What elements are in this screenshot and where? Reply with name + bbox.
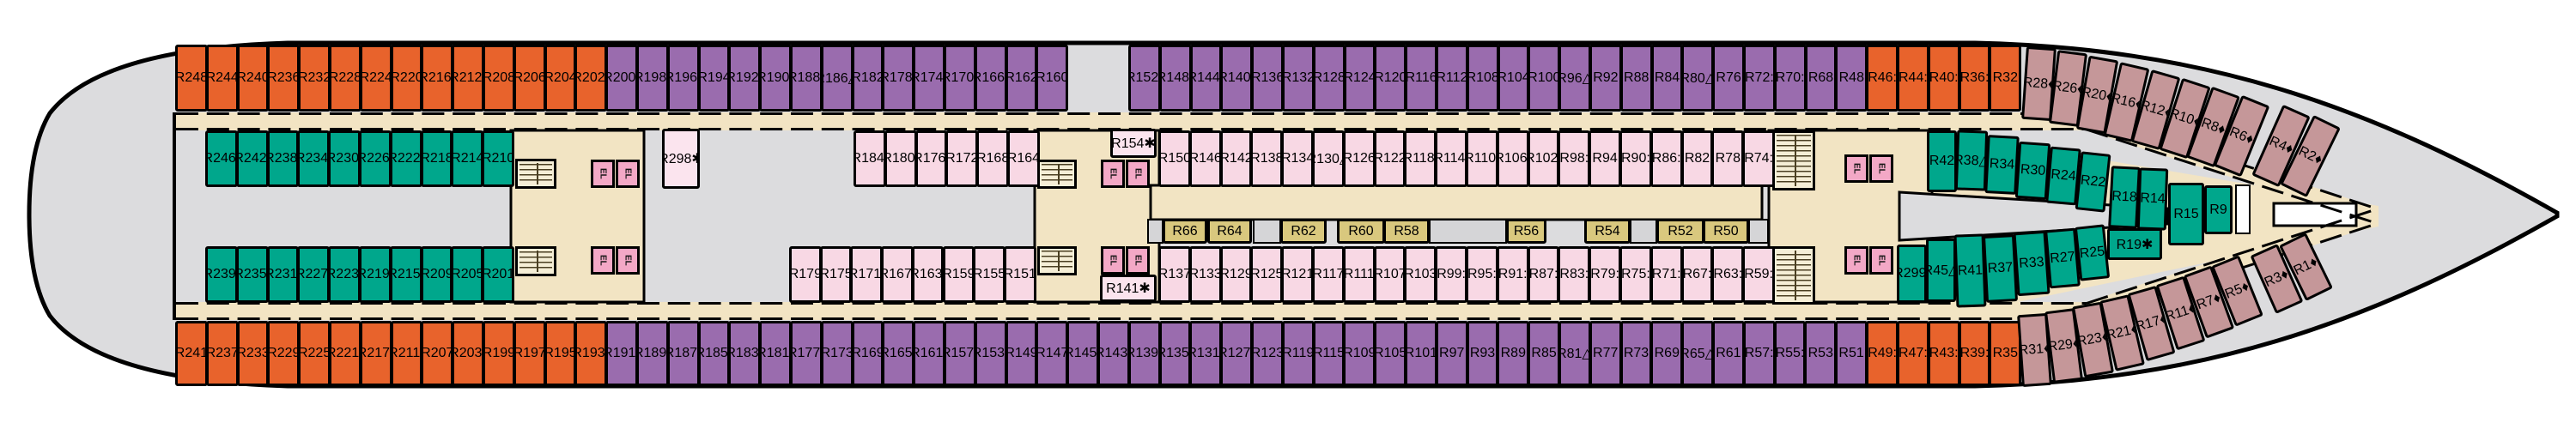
cabin-R90[interactable]: R90: [1619, 130, 1652, 187]
cabin-R181[interactable]: R181• [759, 321, 792, 386]
elevator-cell: EL [1126, 160, 1150, 188]
cabin-R219[interactable]: R219: [359, 246, 392, 303]
cabin-R153[interactable]: R153• [975, 321, 1007, 386]
cabin-R18[interactable]: R18 [2108, 166, 2141, 229]
cabin-R115[interactable]: R115 [1313, 321, 1346, 386]
cabin-R238[interactable]: R238: [267, 130, 300, 187]
cabin-R171[interactable]: R171: [850, 246, 883, 303]
cabin-R22[interactable]: R22 [2075, 151, 2111, 212]
cabin-R63[interactable]: R63: [1711, 246, 1744, 303]
cabin-R56[interactable]: R56 [1506, 219, 1546, 244]
cabin-R196[interactable]: R196• [667, 45, 700, 112]
cabin-R110[interactable]: R110: [1466, 130, 1498, 187]
stairs-icon [515, 159, 556, 189]
cabin-R83[interactable]: R83: [1558, 246, 1590, 303]
interior-gap [1429, 219, 1507, 244]
cabin-R125[interactable]: R125 [1250, 246, 1283, 303]
cabin-R95[interactable]: R95: [1466, 246, 1498, 303]
elevator-cell: EL [591, 246, 615, 275]
elevator-cell: EL [1126, 246, 1150, 275]
stairs-icon [1772, 246, 1815, 305]
cabin-R222[interactable]: R222: [390, 130, 422, 187]
elevator-cell: EL [1844, 154, 1868, 183]
elevator-cell: EL [1101, 246, 1125, 275]
cabin-R159[interactable]: R159 [943, 246, 975, 303]
cabin-R155[interactable]: R155 [973, 246, 1005, 303]
cabin-R33[interactable]: R33 [2013, 231, 2050, 296]
cabin-R201[interactable]: R201 [482, 246, 514, 303]
cabin-R137[interactable]: R137 [1158, 246, 1191, 303]
cabin-R182[interactable]: R182 [852, 45, 884, 112]
cabin-R218[interactable]: R218 [421, 130, 453, 187]
cabin-R244[interactable]: R244 [206, 45, 239, 112]
cabin-R98[interactable]: R98: [1558, 130, 1590, 187]
cabin-R211[interactable]: R211• [391, 321, 423, 386]
cabin-R198[interactable]: R198• [636, 45, 669, 112]
cabin-R99[interactable]: R99: [1435, 246, 1467, 303]
cabin-R41[interactable]: R41 [1954, 233, 1987, 307]
cabin-R203[interactable]: R203• [452, 321, 484, 386]
cabin-R177[interactable]: R177• [790, 321, 823, 386]
cabin-R19[interactable]: R19✱ [2107, 228, 2162, 260]
cabin-R235[interactable]: R235: [236, 246, 269, 303]
cabin-R104[interactable]: R104 [1498, 45, 1530, 112]
cabin-R164[interactable]: R164 [1007, 130, 1040, 187]
cabin-R240[interactable]: R240 [237, 45, 270, 112]
cabin-R233[interactable]: R233 [237, 321, 270, 386]
stairs-icon [515, 246, 556, 276]
cabin-R94[interactable]: R94 [1589, 130, 1621, 187]
cabin-R47[interactable]: R47: [1897, 321, 1929, 386]
cabin-R82[interactable]: R82 [1681, 130, 1714, 187]
cabin-R53[interactable]: R53 [1804, 321, 1837, 386]
cabin-R299[interactable]: R299: [1897, 245, 1927, 303]
cabin-R241[interactable]: R241 [175, 321, 208, 386]
cabin-R236[interactable]: R236 [267, 45, 300, 112]
cabin-R75[interactable]: R75: [1619, 246, 1652, 303]
cabin-R248[interactable]: R248 [175, 45, 208, 112]
cabin-R76[interactable]: R76 [1712, 45, 1745, 112]
cabin-R70[interactable]: R70: [1774, 45, 1807, 112]
cabin-R221[interactable]: R221• [329, 321, 361, 386]
cabin-R55[interactable]: R55: [1774, 321, 1807, 386]
stairs-icon [1037, 160, 1077, 189]
elevator-label: EL [1852, 255, 1862, 266]
elevator-cell: EL [1844, 246, 1868, 275]
cabin-R162[interactable]: R162 [1005, 45, 1038, 112]
cabin-R230[interactable]: R230: [328, 130, 361, 187]
cabin-R169[interactable]: R169 [852, 321, 884, 386]
cabin-R34[interactable]: R34 [1984, 135, 2020, 195]
cabin-R163[interactable]: R163: [912, 246, 945, 303]
cabin-R146[interactable]: R146 [1189, 130, 1222, 187]
cabin-R78[interactable]: R78 [1711, 130, 1744, 187]
cabin-R62[interactable]: R62 [1280, 219, 1327, 244]
elevator-cell: EL [1869, 154, 1893, 183]
cabin-R237[interactable]: R237 [206, 321, 239, 386]
cabin-R246[interactable]: R246: [205, 130, 238, 187]
cabin-R217[interactable]: R217• [360, 321, 392, 386]
cabin-R69[interactable]: R69 [1650, 321, 1683, 386]
cabin-R121[interactable]: R121 [1281, 246, 1314, 303]
cabin-R200[interactable]: R200• [605, 45, 638, 112]
cabin-R68[interactable]: R68 [1805, 45, 1838, 112]
cabin-R96[interactable]: R96△ [1558, 45, 1591, 112]
cabin-R123[interactable]: R123 [1251, 321, 1284, 386]
cabin-R103[interactable]: R103 [1404, 246, 1437, 303]
cabin-R71[interactable]: R71: [1650, 246, 1683, 303]
cabin-R183[interactable]: R183• [728, 321, 761, 386]
cabin-R220[interactable]: R220 [391, 45, 423, 112]
cabin-R81[interactable]: R81△ [1558, 321, 1591, 386]
cabin-R107[interactable]: R107 [1374, 246, 1406, 303]
cabin-R140[interactable]: R140• [1220, 45, 1253, 112]
cabin-R178[interactable]: R178• [882, 45, 914, 112]
cabin-R66[interactable]: R66 [1163, 219, 1207, 244]
cabin-R147[interactable]: R147 [1036, 321, 1068, 386]
cabin-R126[interactable]: R126 [1343, 130, 1376, 187]
elevator-cell: EL [616, 160, 640, 188]
cabin-R65[interactable]: R65△ [1681, 321, 1714, 386]
cabin-R109[interactable]: R109 [1343, 321, 1376, 386]
cabin-R101[interactable]: R101 [1405, 321, 1437, 386]
cabin-R144[interactable]: R144• [1190, 45, 1223, 112]
cabin-R234[interactable]: R234: [297, 130, 330, 187]
cabin-R73[interactable]: R73 [1620, 321, 1653, 386]
cabin-R15[interactable]: R15 [2168, 183, 2204, 245]
cabin-R116[interactable]: R116 [1405, 45, 1437, 112]
cabin-R190[interactable]: R190• [759, 45, 792, 112]
interior-gap [1147, 219, 1163, 244]
cabin-R149[interactable]: R149 [1005, 321, 1038, 386]
cabin-R67[interactable]: R67: [1681, 246, 1714, 303]
cabin-R129[interactable]: R129 [1220, 246, 1253, 303]
cabin-R54[interactable]: R54 [1584, 219, 1631, 244]
cabin-R226[interactable]: R226: [359, 130, 392, 187]
elevator-cell: EL [1869, 246, 1893, 275]
cabin-R80[interactable]: R80△ [1681, 45, 1714, 112]
cabin-R184[interactable]: R184: [854, 130, 886, 187]
cabin-R228[interactable]: R228 [329, 45, 361, 112]
cabin-R37[interactable]: R37 [1983, 234, 2018, 303]
cabin-R85[interactable]: R85 [1528, 321, 1560, 386]
cabin-R77[interactable]: R77 [1589, 321, 1622, 386]
cabin-R122[interactable]: R122 [1374, 130, 1406, 187]
cabin-R36[interactable]: R36: [1959, 45, 1991, 112]
cabin-R161[interactable]: R161• [913, 321, 945, 386]
cabin-R87[interactable]: R87: [1528, 246, 1560, 303]
cabin-R185[interactable]: R185• [698, 321, 731, 386]
elevator-label: EL [1852, 163, 1862, 174]
cabin-R197[interactable]: R197 [513, 321, 546, 386]
cabin-R207[interactable]: R207 [421, 321, 453, 386]
cabin-R142[interactable]: R142 [1220, 130, 1253, 187]
cabin-R212[interactable]: R212• [452, 45, 484, 112]
elevator-label: EL [1877, 163, 1886, 174]
cabin-R49[interactable]: R49: [1866, 321, 1899, 386]
cabin-R174[interactable]: R174• [913, 45, 945, 112]
cabin-R229[interactable]: R229 [267, 321, 300, 386]
cabin-R143[interactable]: R143• [1097, 321, 1130, 386]
cabin-R105[interactable]: R105 [1374, 321, 1406, 386]
elevator-cell: EL [616, 246, 640, 275]
cabin-R227[interactable]: R227: [297, 246, 330, 303]
cabin-R58[interactable]: R58 [1383, 219, 1430, 244]
elevator-label: EL [1877, 255, 1886, 266]
interior-gap [1253, 219, 1281, 244]
cabin-R44[interactable]: R44: [1897, 45, 1929, 112]
cabin-R130[interactable]: R130△ [1312, 130, 1345, 187]
cabin-R112[interactable]: R112 [1436, 45, 1468, 112]
cabin-R180[interactable]: R180: [884, 130, 917, 187]
cabin-R39[interactable]: R39: [1959, 321, 1991, 386]
stairs-icon [1772, 130, 1815, 190]
cabin-R134[interactable]: R134 [1281, 130, 1314, 187]
cabin-R167[interactable]: R167: [881, 246, 914, 303]
cabin-R214[interactable]: R214 [451, 130, 483, 187]
cabin-R141[interactable]: R141✱ [1100, 275, 1157, 302]
cabin-R170[interactable]: R170• [944, 45, 976, 112]
cabin-R205[interactable]: R205 [451, 246, 483, 303]
cabin-R139[interactable]: R139• [1128, 321, 1161, 386]
cabin-R215[interactable]: R215: [390, 246, 422, 303]
cabin-R48[interactable]: R48 [1835, 45, 1868, 112]
cabin-R152[interactable]: R152• [1128, 45, 1161, 112]
cabin-R57[interactable]: R57: [1743, 321, 1776, 386]
cabin-R209[interactable]: R209 [421, 246, 453, 303]
cabin-R92[interactable]: R92 [1589, 45, 1622, 112]
cabin-R38[interactable]: R38△ [1955, 130, 1988, 190]
cabin-R165[interactable]: R165• [882, 321, 914, 386]
stairs-icon [1037, 246, 1077, 275]
cabin-R179[interactable]: R179 [789, 246, 822, 303]
cabin-R88[interactable]: R88 [1620, 45, 1653, 112]
cabin-layer: R248R244R240R236R232R228R224R220R216•R21… [0, 0, 2576, 429]
cabin-R150[interactable]: R150 [1158, 130, 1191, 187]
cabin-R172[interactable]: R172 [945, 130, 978, 187]
cabin-R157[interactable]: R157• [944, 321, 976, 386]
cabin-R89[interactable]: R89 [1497, 321, 1529, 386]
cabin-R191[interactable]: R191• [605, 321, 638, 386]
cabin-R91[interactable]: R91: [1497, 246, 1529, 303]
cabin-R59[interactable]: R59: [1742, 246, 1775, 303]
cabin-R45[interactable]: R45△ [1926, 239, 1956, 302]
cabin-R42[interactable]: R42 [1927, 130, 1957, 192]
cabin-R231[interactable]: R231: [267, 246, 300, 303]
cabin-R43[interactable]: R43: [1928, 321, 1960, 386]
cabin-R186[interactable]: R186△ [821, 45, 854, 112]
cabin-R51[interactable]: R51 [1835, 321, 1868, 386]
cabin-R111[interactable]: R111 [1343, 246, 1376, 303]
cabin-R64[interactable]: R64 [1207, 219, 1252, 244]
cabin-R194[interactable]: R194 [698, 45, 731, 112]
cabin-R133[interactable]: R133 [1189, 246, 1222, 303]
cabin-R188[interactable]: R188• [790, 45, 823, 112]
cabin-R195[interactable]: R195 [544, 321, 577, 386]
cabin-R128[interactable]: R128 [1313, 45, 1346, 112]
cabin-R14[interactable]: R14 [2137, 167, 2168, 230]
elevator-label: EL [598, 168, 608, 179]
elevator-label: EL [623, 168, 633, 179]
elevator-label: EL [1109, 168, 1118, 179]
cabin-R136[interactable]: R136 [1251, 45, 1284, 112]
cabin-R93[interactable]: R93 [1467, 321, 1499, 386]
interior-gap [1748, 219, 1769, 244]
cabin-R192[interactable]: R192• [728, 45, 761, 112]
cabin-R30[interactable]: R30 [2015, 142, 2051, 200]
cabin-R206[interactable]: R206 [513, 45, 546, 112]
elevator-cell: EL [591, 160, 615, 188]
cabin-R118[interactable]: R118: [1404, 130, 1437, 187]
cabin-R208[interactable]: R208 [483, 45, 515, 112]
cabin-R50[interactable]: R50 [1703, 219, 1749, 244]
cabin-R72[interactable]: R72: [1743, 45, 1776, 112]
cabin-R9[interactable]: R9 [2204, 185, 2233, 234]
cabin-R148[interactable]: R148• [1159, 45, 1192, 112]
cabin-R84[interactable]: R84 [1651, 45, 1684, 112]
cabin-R35[interactable]: R35 [1989, 321, 2021, 386]
cabin-R242[interactable]: R242: [236, 130, 269, 187]
cabin-R193[interactable]: R193• [574, 321, 607, 386]
cabin-R168[interactable]: R168 [976, 130, 1009, 187]
cabin-R173[interactable]: R173 [821, 321, 854, 386]
cabin-R46[interactable]: R46: [1866, 45, 1899, 112]
cabin-R239[interactable]: R239: [205, 246, 238, 303]
cabin-R106[interactable]: R106: [1497, 130, 1529, 187]
cabin-R40[interactable]: R40: [1928, 45, 1960, 112]
cabin-R108[interactable]: R108 [1467, 45, 1499, 112]
deck-plan: R248R244R240R236R232R228R224R220R216•R21… [0, 0, 2576, 429]
cabin-R124[interactable]: R124 [1344, 45, 1376, 112]
cabin-R202[interactable]: R202• [574, 45, 607, 112]
cabin-R175[interactable]: R175 [820, 246, 853, 303]
cabin-R114[interactable]: R114: [1435, 130, 1467, 187]
cabin-R204[interactable]: R204 [544, 45, 577, 112]
cabin-R298[interactable]: R298✱ [662, 129, 700, 189]
cabin-R224[interactable]: R224 [360, 45, 392, 112]
cabin-R160[interactable]: R160 [1036, 45, 1068, 112]
cabin-R100[interactable]: R100 [1528, 45, 1560, 112]
cabin-R102[interactable]: R102: [1528, 130, 1560, 187]
cabin-R61[interactable]: R61 [1712, 321, 1745, 386]
interior-gap [1630, 219, 1657, 244]
cabin-R60[interactable]: R60 [1337, 219, 1385, 244]
cabin-R127[interactable]: R127• [1220, 321, 1253, 386]
cabin-R138[interactable]: R138 [1250, 130, 1283, 187]
cabin-R97[interactable]: R97 [1436, 321, 1468, 386]
cabin-R151[interactable]: R151 [1004, 246, 1036, 303]
cabin-R232[interactable]: R232 [298, 45, 331, 112]
cabin-R79[interactable]: R79: [1589, 246, 1621, 303]
cabin-R52[interactable]: R52 [1656, 219, 1704, 244]
cabin-R135[interactable]: R135• [1159, 321, 1192, 386]
elevator-label: EL [1133, 168, 1143, 179]
cabin-R86[interactable]: R86: [1650, 130, 1683, 187]
elevator-label: EL [1109, 255, 1118, 266]
cabin-R32[interactable]: R32 [1989, 45, 2021, 112]
cabin-R166[interactable]: R166• [975, 45, 1007, 112]
cabin-R187[interactable]: R187• [667, 321, 700, 386]
cabin-R210[interactable]: R210 [482, 130, 514, 187]
cabin-R131[interactable]: R131• [1189, 321, 1222, 386]
cabin-R145[interactable]: R145• [1066, 321, 1099, 386]
cabin-R199[interactable]: R199 [483, 321, 515, 386]
cabin-R225[interactable]: R225 [298, 321, 331, 386]
elevator-label: EL [598, 255, 608, 266]
cabin-R154[interactable]: R154✱ [1110, 129, 1157, 158]
cabin-R119[interactable]: R119 [1282, 321, 1315, 386]
cabin-R176[interactable]: R176: [915, 130, 948, 187]
elevator-label: EL [1133, 255, 1143, 266]
cabin-R216[interactable]: R216• [421, 45, 453, 112]
cabin-R132[interactable]: R132 [1282, 45, 1315, 112]
cabin-R120[interactable]: R120 [1374, 45, 1406, 112]
elevator-cell: EL [1101, 160, 1125, 188]
cabin-R117[interactable]: R117 [1312, 246, 1345, 303]
cabin-R25[interactable]: R25 [2075, 224, 2110, 281]
cabin-R74[interactable]: R74: [1742, 130, 1775, 187]
cabin-R189[interactable]: R189• [636, 321, 669, 386]
elevator-label: EL [623, 255, 633, 266]
cabin-R223[interactable]: R223: [328, 246, 361, 303]
